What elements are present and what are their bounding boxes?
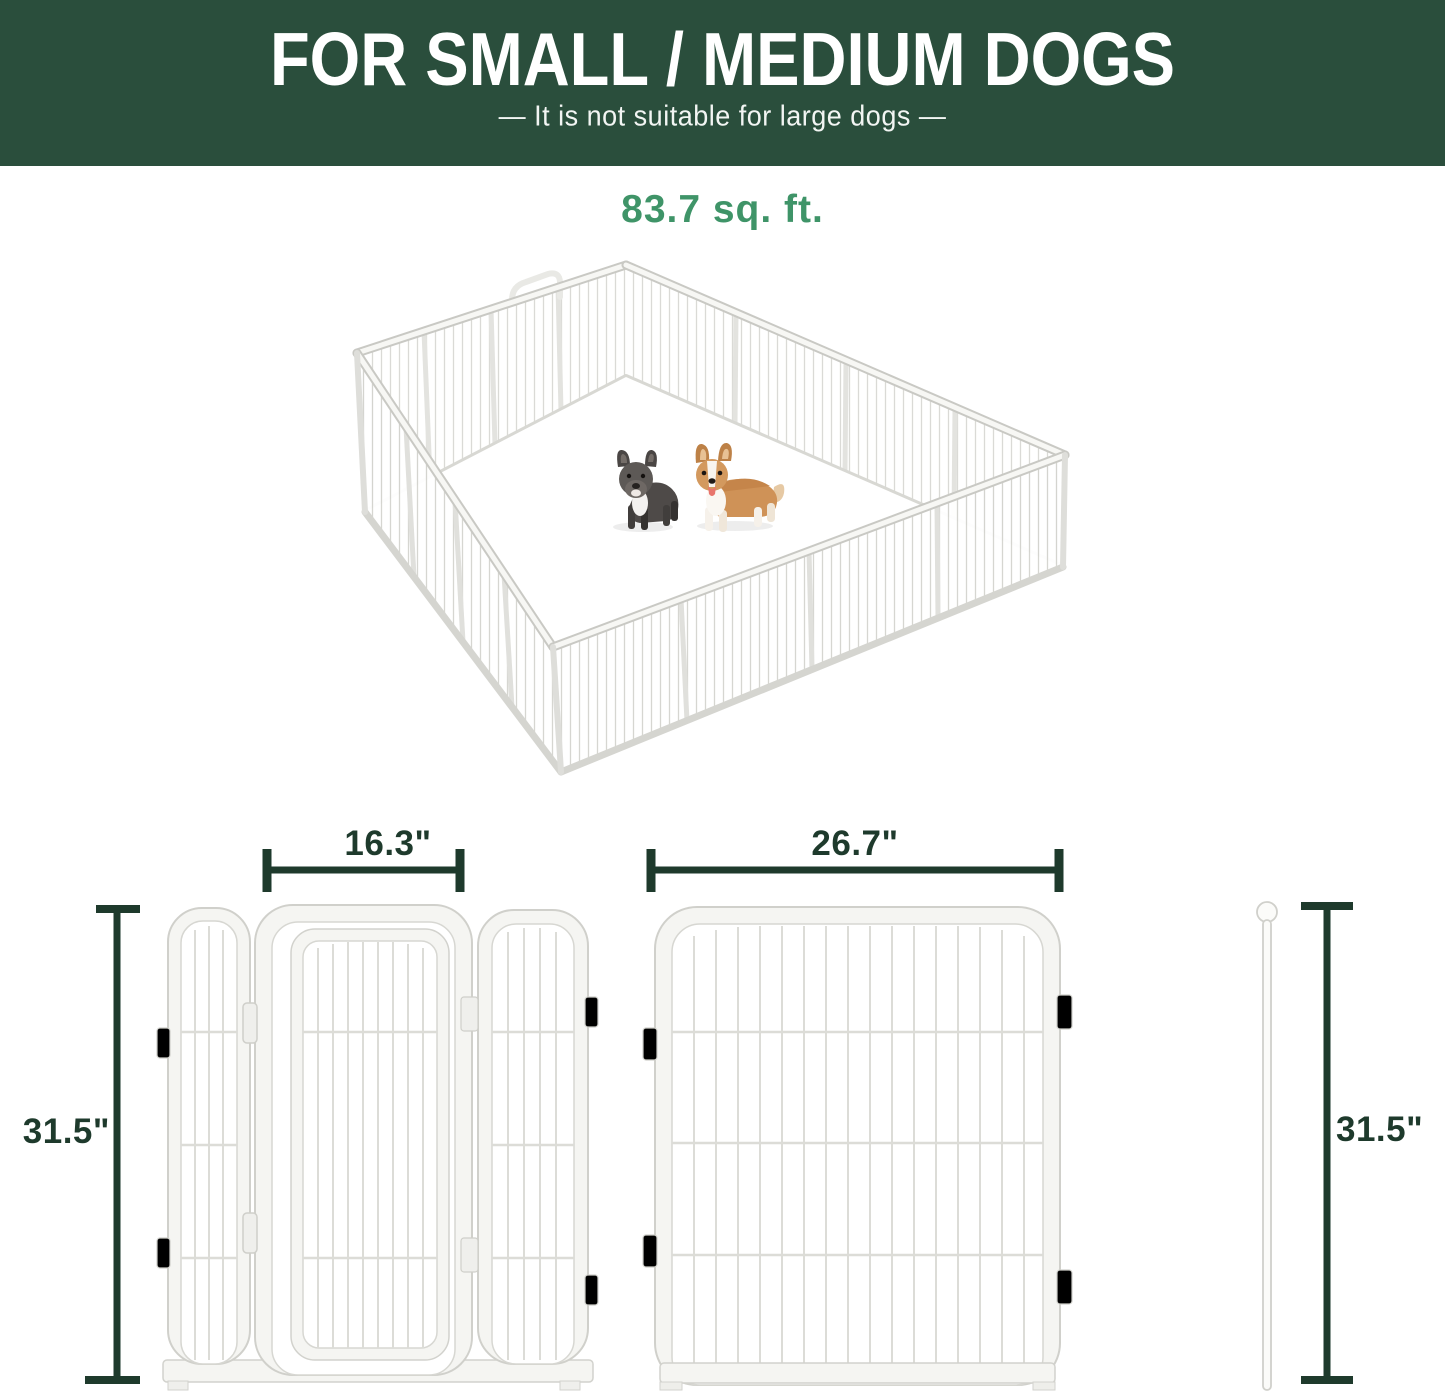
narrow-panel-right [478, 910, 588, 1364]
playpen-illustration [350, 255, 1095, 820]
header-banner: FOR SMALL / MEDIUM DOGS — It is not suit… [0, 0, 1445, 166]
dimension-label-height-right: 31.5" [1336, 1110, 1445, 1150]
connector-rod [1257, 902, 1277, 1390]
dimension-label-panel-width: 26.7" [755, 824, 955, 864]
connector-tab [643, 1028, 657, 1060]
large-panel [643, 907, 1072, 1390]
connector-tab [157, 1028, 170, 1058]
dimension-label-height-left: 31.5" [8, 1112, 110, 1152]
door-latch [243, 1003, 257, 1043]
page-title: FOR SMALL / MEDIUM DOGS [22, 0, 1424, 97]
dimension-label-door-width: 16.3" [288, 824, 488, 864]
area-size-label: 83.7 sq. ft. [0, 188, 1445, 232]
door-hinge [461, 997, 478, 1031]
playpen-svg [350, 255, 1095, 820]
diagram-svg [0, 820, 1445, 1392]
panel-group-with-door [157, 905, 598, 1390]
door-panel [243, 905, 472, 1375]
dimension-diagrams [0, 820, 1445, 1392]
narrow-panel-left [168, 908, 250, 1364]
page-subtitle: — It is not suitable for large dogs — [0, 100, 1445, 133]
